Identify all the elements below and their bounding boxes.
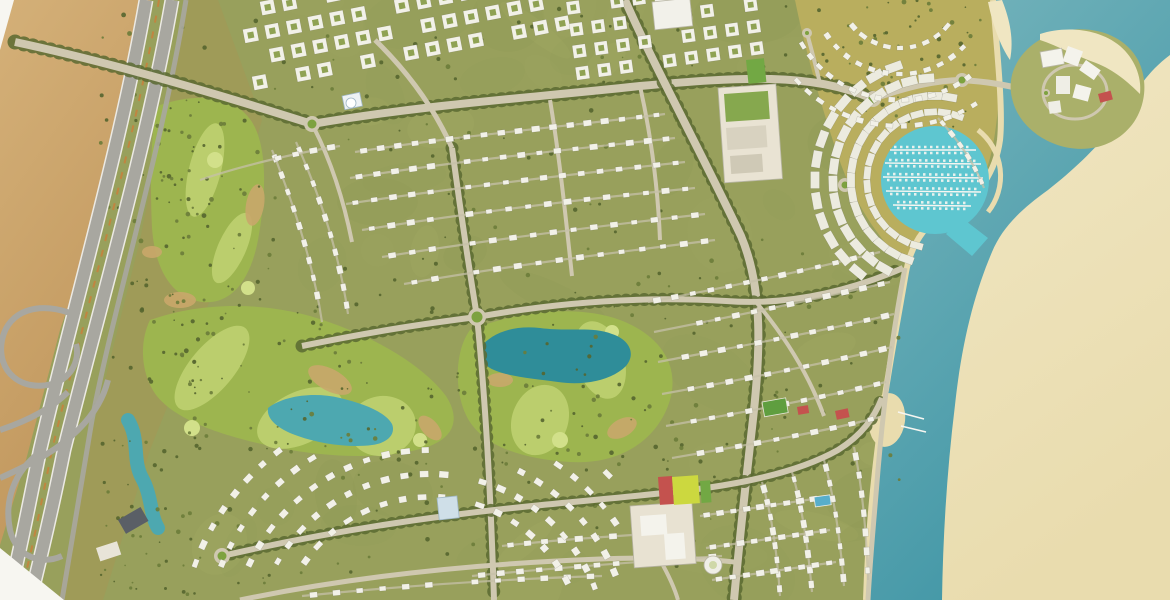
villa-building: [696, 450, 705, 457]
villa-building: [772, 542, 778, 550]
villa-building: [835, 527, 840, 534]
tree: [761, 239, 764, 242]
tree: [206, 331, 210, 335]
tree: [354, 302, 358, 306]
villa-building: [707, 287, 715, 293]
tree: [617, 462, 621, 466]
tree: [869, 63, 873, 67]
tree: [173, 319, 175, 321]
apartment-courtyard: [666, 57, 672, 63]
villa-building: [643, 137, 652, 144]
berthed-boats: [890, 194, 977, 195]
villa-building: [332, 590, 340, 596]
tree: [366, 382, 368, 384]
villa-building: [660, 244, 667, 249]
tree: [174, 353, 177, 356]
villa-building: [406, 219, 415, 226]
tree: [182, 590, 186, 594]
tree: [598, 413, 602, 417]
villa-building: [687, 386, 695, 392]
villa-building: [356, 588, 363, 593]
tree: [968, 34, 972, 38]
tree: [527, 481, 530, 484]
tree: [589, 203, 591, 205]
tree: [106, 490, 109, 493]
tree: [898, 478, 901, 481]
tree: [157, 564, 161, 568]
apartment-courtyard: [537, 24, 544, 31]
tree: [181, 354, 184, 357]
tree: [965, 6, 967, 8]
roundabout-green: [1044, 91, 1048, 95]
tree: [101, 442, 105, 446]
villa-building: [682, 187, 689, 192]
villa-building: [662, 136, 669, 142]
tree: [431, 154, 435, 158]
villa-building: [427, 217, 435, 223]
tree: [430, 306, 434, 310]
tree: [165, 560, 168, 563]
tree: [206, 322, 209, 325]
villa-building: [497, 570, 505, 576]
tree: [168, 201, 170, 203]
apartment-courtyard: [290, 23, 297, 30]
tree: [574, 292, 576, 294]
villa-building: [495, 578, 501, 583]
tree: [156, 197, 159, 200]
tree: [818, 384, 822, 388]
villa-building: [426, 163, 435, 170]
villa-building: [422, 447, 429, 453]
tree: [113, 440, 115, 442]
tree: [694, 403, 699, 408]
villa-building: [409, 249, 416, 255]
apartment-courtyard: [468, 13, 475, 20]
tree: [367, 427, 370, 430]
villa-building: [409, 165, 418, 172]
villa-building: [754, 339, 762, 346]
tree: [784, 332, 786, 334]
villa-building: [839, 558, 845, 566]
villa-building: [715, 446, 724, 453]
apartment-courtyard: [269, 27, 276, 34]
tree: [596, 394, 600, 398]
tree: [397, 457, 401, 461]
apartment-courtyard: [321, 66, 328, 73]
masterplan-map: [0, 0, 1170, 600]
apartment-courtyard: [398, 2, 405, 9]
villa-building: [623, 192, 630, 197]
villa-building: [837, 543, 842, 550]
tree: [541, 418, 545, 422]
round-building-court: [709, 561, 717, 569]
villa-building: [463, 159, 470, 165]
tree: [667, 460, 669, 462]
sail-pavilion-dome: [346, 98, 356, 108]
villa-building: [355, 173, 363, 179]
tree: [134, 119, 137, 122]
villa-building: [798, 564, 806, 570]
tree: [785, 5, 788, 8]
villa-building: [610, 221, 618, 228]
villa-building: [690, 418, 697, 424]
villa-building: [805, 530, 814, 537]
tree: [163, 175, 166, 178]
tree: [104, 569, 106, 571]
tree: [274, 441, 277, 444]
glass-building: [437, 496, 459, 520]
apartment-courtyard: [355, 10, 362, 17]
tree: [164, 128, 167, 131]
tree: [340, 437, 342, 439]
tree: [848, 295, 853, 300]
midrise-block: [811, 172, 820, 189]
tree: [156, 507, 160, 511]
villa-building: [543, 201, 552, 208]
apartment-courtyard: [685, 33, 691, 39]
apartment-courtyard: [598, 45, 604, 51]
tree: [422, 258, 424, 260]
tree: [238, 304, 241, 307]
marina-pier: [886, 191, 981, 192]
villa-building: [608, 142, 615, 147]
tree: [131, 534, 134, 537]
apartment-courtyard: [334, 15, 341, 22]
tree: [278, 342, 282, 346]
tree: [266, 448, 268, 450]
villa-building: [625, 139, 634, 146]
tree: [866, 6, 868, 8]
villa-building: [563, 198, 572, 205]
tree: [127, 484, 129, 486]
tree: [726, 443, 729, 446]
tree: [399, 130, 401, 132]
villa-building: [714, 316, 721, 321]
tree: [208, 203, 210, 205]
marina-pier: [893, 205, 971, 206]
villa-building: [901, 123, 907, 129]
tree: [427, 387, 429, 389]
tree: [243, 343, 245, 345]
tree: [194, 437, 197, 440]
tree: [595, 526, 598, 529]
villa-building: [343, 301, 349, 309]
tree: [888, 453, 892, 457]
tree: [191, 379, 194, 382]
tree: [283, 339, 286, 342]
tree: [536, 435, 540, 439]
tree: [360, 362, 362, 364]
villa-building: [309, 592, 317, 598]
tree: [373, 436, 378, 441]
apartment-courtyard: [579, 70, 585, 76]
villa-building: [910, 70, 918, 76]
tree: [205, 434, 209, 438]
villa-building: [411, 140, 418, 146]
villa-building: [388, 252, 397, 259]
tree: [556, 452, 559, 455]
tree: [262, 577, 264, 579]
tree: [308, 380, 312, 384]
villa-building: [509, 234, 517, 241]
tree: [457, 372, 459, 374]
tree: [636, 282, 640, 286]
tree: [850, 362, 853, 365]
tree: [300, 571, 303, 574]
tree: [258, 185, 260, 187]
tree: [504, 462, 508, 466]
villa-building: [700, 238, 708, 244]
tree: [221, 175, 223, 177]
apartment-courtyard: [489, 9, 496, 16]
villa-building: [792, 532, 800, 538]
villa-building: [352, 200, 359, 205]
tree: [777, 450, 779, 452]
tree: [473, 447, 477, 451]
tree: [664, 318, 666, 320]
tree: [614, 230, 617, 233]
tree: [338, 365, 341, 368]
tree: [585, 468, 588, 471]
villa-building: [499, 154, 506, 160]
tree: [462, 391, 467, 396]
villa-building: [768, 513, 774, 520]
villa-building: [699, 350, 708, 357]
tree: [434, 262, 438, 266]
villa-building: [503, 180, 509, 185]
running-track: [658, 476, 674, 505]
tree: [144, 283, 148, 287]
villa-building: [882, 70, 889, 76]
villa-building: [471, 579, 478, 584]
villa-building: [497, 130, 505, 136]
tree: [132, 582, 134, 584]
tree: [181, 324, 184, 327]
tree: [227, 507, 232, 512]
tree: [203, 299, 206, 302]
tree: [202, 213, 207, 218]
tree: [600, 55, 604, 59]
villa-building: [505, 206, 512, 212]
island-building: [1048, 100, 1062, 114]
villa-building: [902, 98, 909, 103]
tree: [274, 196, 277, 199]
villa-building: [643, 190, 650, 195]
tree: [100, 93, 104, 97]
apartment-courtyard: [511, 5, 518, 12]
tree: [713, 476, 716, 479]
villa-building: [897, 46, 903, 51]
tree: [929, 8, 933, 12]
villa-building: [473, 269, 480, 274]
villa-building: [750, 538, 757, 544]
villa-building: [615, 166, 622, 172]
villa-building: [639, 246, 646, 252]
tree: [248, 391, 250, 393]
apartment-courtyard: [642, 39, 648, 45]
villa-building: [764, 536, 771, 542]
villa-building: [833, 511, 838, 518]
villa-building: [631, 220, 637, 225]
tree: [890, 76, 893, 79]
villa-building: [770, 568, 779, 575]
tree: [873, 34, 876, 37]
villa-building: [536, 150, 543, 155]
tree: [374, 428, 376, 430]
tree: [268, 268, 270, 270]
island-building: [1056, 76, 1070, 94]
villa-building: [427, 189, 434, 194]
villa-building: [743, 572, 751, 578]
apartment-courtyard: [688, 54, 694, 60]
school-wing: [664, 533, 686, 560]
tree: [896, 336, 900, 340]
apartment-courtyard: [559, 20, 566, 27]
tree: [974, 64, 976, 66]
tree: [168, 129, 171, 132]
tree: [222, 122, 226, 126]
swimming-pool: [814, 495, 831, 507]
masterplan-screenshot: [0, 0, 1170, 600]
villa-building: [590, 224, 598, 230]
villa-building: [764, 371, 772, 377]
villa-building: [696, 320, 704, 326]
villa-building: [535, 260, 542, 265]
apartment-courtyard: [617, 20, 623, 26]
villa-building: [725, 283, 732, 289]
tree: [193, 146, 195, 148]
villa-building: [716, 510, 724, 517]
tree: [311, 86, 313, 88]
villa-building: [736, 344, 743, 349]
tree: [194, 387, 196, 389]
tree: [506, 452, 509, 455]
villa-building: [800, 397, 807, 403]
tree: [121, 13, 126, 18]
tree: [191, 150, 193, 152]
apartment-courtyard: [570, 4, 576, 10]
tree: [349, 438, 353, 442]
villa-building: [753, 440, 761, 447]
tree: [202, 45, 206, 49]
tree: [297, 312, 299, 314]
villa-building: [618, 117, 625, 122]
tree: [658, 272, 662, 276]
midrise-block: [924, 108, 937, 116]
tree: [153, 463, 157, 467]
villa-building: [618, 249, 625, 254]
apartment-courtyard: [595, 23, 601, 29]
apartment-courtyard: [360, 34, 367, 41]
tree: [365, 94, 369, 98]
villa-building: [773, 336, 780, 342]
apartment-courtyard: [729, 26, 735, 32]
tree: [148, 377, 152, 381]
tree: [199, 557, 201, 559]
villa-building: [734, 443, 742, 449]
villa-building: [360, 148, 368, 154]
villa-building: [709, 544, 716, 550]
tree: [337, 562, 339, 564]
tree: [209, 264, 212, 267]
apartment-courtyard: [451, 41, 458, 48]
villa-building: [672, 160, 679, 165]
tree: [917, 15, 920, 18]
tree: [621, 455, 624, 458]
tree: [715, 276, 719, 280]
tree: [144, 441, 147, 444]
tree: [189, 114, 192, 117]
tree: [319, 328, 322, 331]
villa-building: [536, 567, 543, 572]
tree: [592, 398, 596, 402]
tree: [379, 60, 383, 64]
villa-building: [549, 229, 557, 235]
tree: [142, 174, 144, 176]
tree: [105, 118, 109, 122]
tree: [188, 511, 192, 515]
villa-building: [389, 194, 398, 201]
tree: [526, 273, 530, 277]
villa-building: [653, 113, 659, 118]
villa-building: [516, 568, 524, 574]
tree: [170, 177, 173, 180]
villa-building: [597, 252, 604, 258]
tree: [105, 525, 107, 527]
apartment-courtyard: [317, 42, 324, 49]
villa-building: [400, 448, 410, 455]
tree: [668, 285, 670, 287]
villa-building: [540, 575, 548, 581]
tree: [289, 450, 293, 454]
marina-pier: [883, 177, 983, 178]
tree: [471, 543, 475, 547]
villa-building: [469, 241, 476, 246]
tree: [617, 383, 621, 387]
tree: [425, 500, 430, 505]
villa-building: [368, 226, 375, 231]
tree: [523, 351, 526, 354]
tree: [311, 321, 315, 325]
villa-building: [634, 164, 642, 170]
villa-building: [420, 471, 429, 478]
tree: [255, 150, 259, 154]
tree: [573, 208, 577, 212]
tree: [220, 316, 224, 320]
villa-building: [681, 353, 689, 360]
villa-building: [679, 241, 688, 248]
tree: [659, 354, 663, 358]
tree: [430, 388, 432, 390]
midrise-block: [863, 180, 871, 194]
tree: [135, 588, 137, 590]
villa-building: [371, 197, 378, 203]
tree: [842, 46, 844, 48]
tree: [424, 440, 427, 443]
tree: [180, 199, 182, 201]
tree: [774, 394, 777, 397]
tree: [227, 285, 229, 287]
villa-building: [600, 118, 609, 125]
tree: [188, 431, 191, 434]
villa-building: [478, 572, 486, 578]
tree: [885, 31, 888, 34]
tree: [233, 248, 235, 250]
tree: [330, 87, 334, 91]
villa-building: [613, 561, 620, 566]
tree: [204, 423, 207, 426]
tree: [566, 448, 570, 452]
